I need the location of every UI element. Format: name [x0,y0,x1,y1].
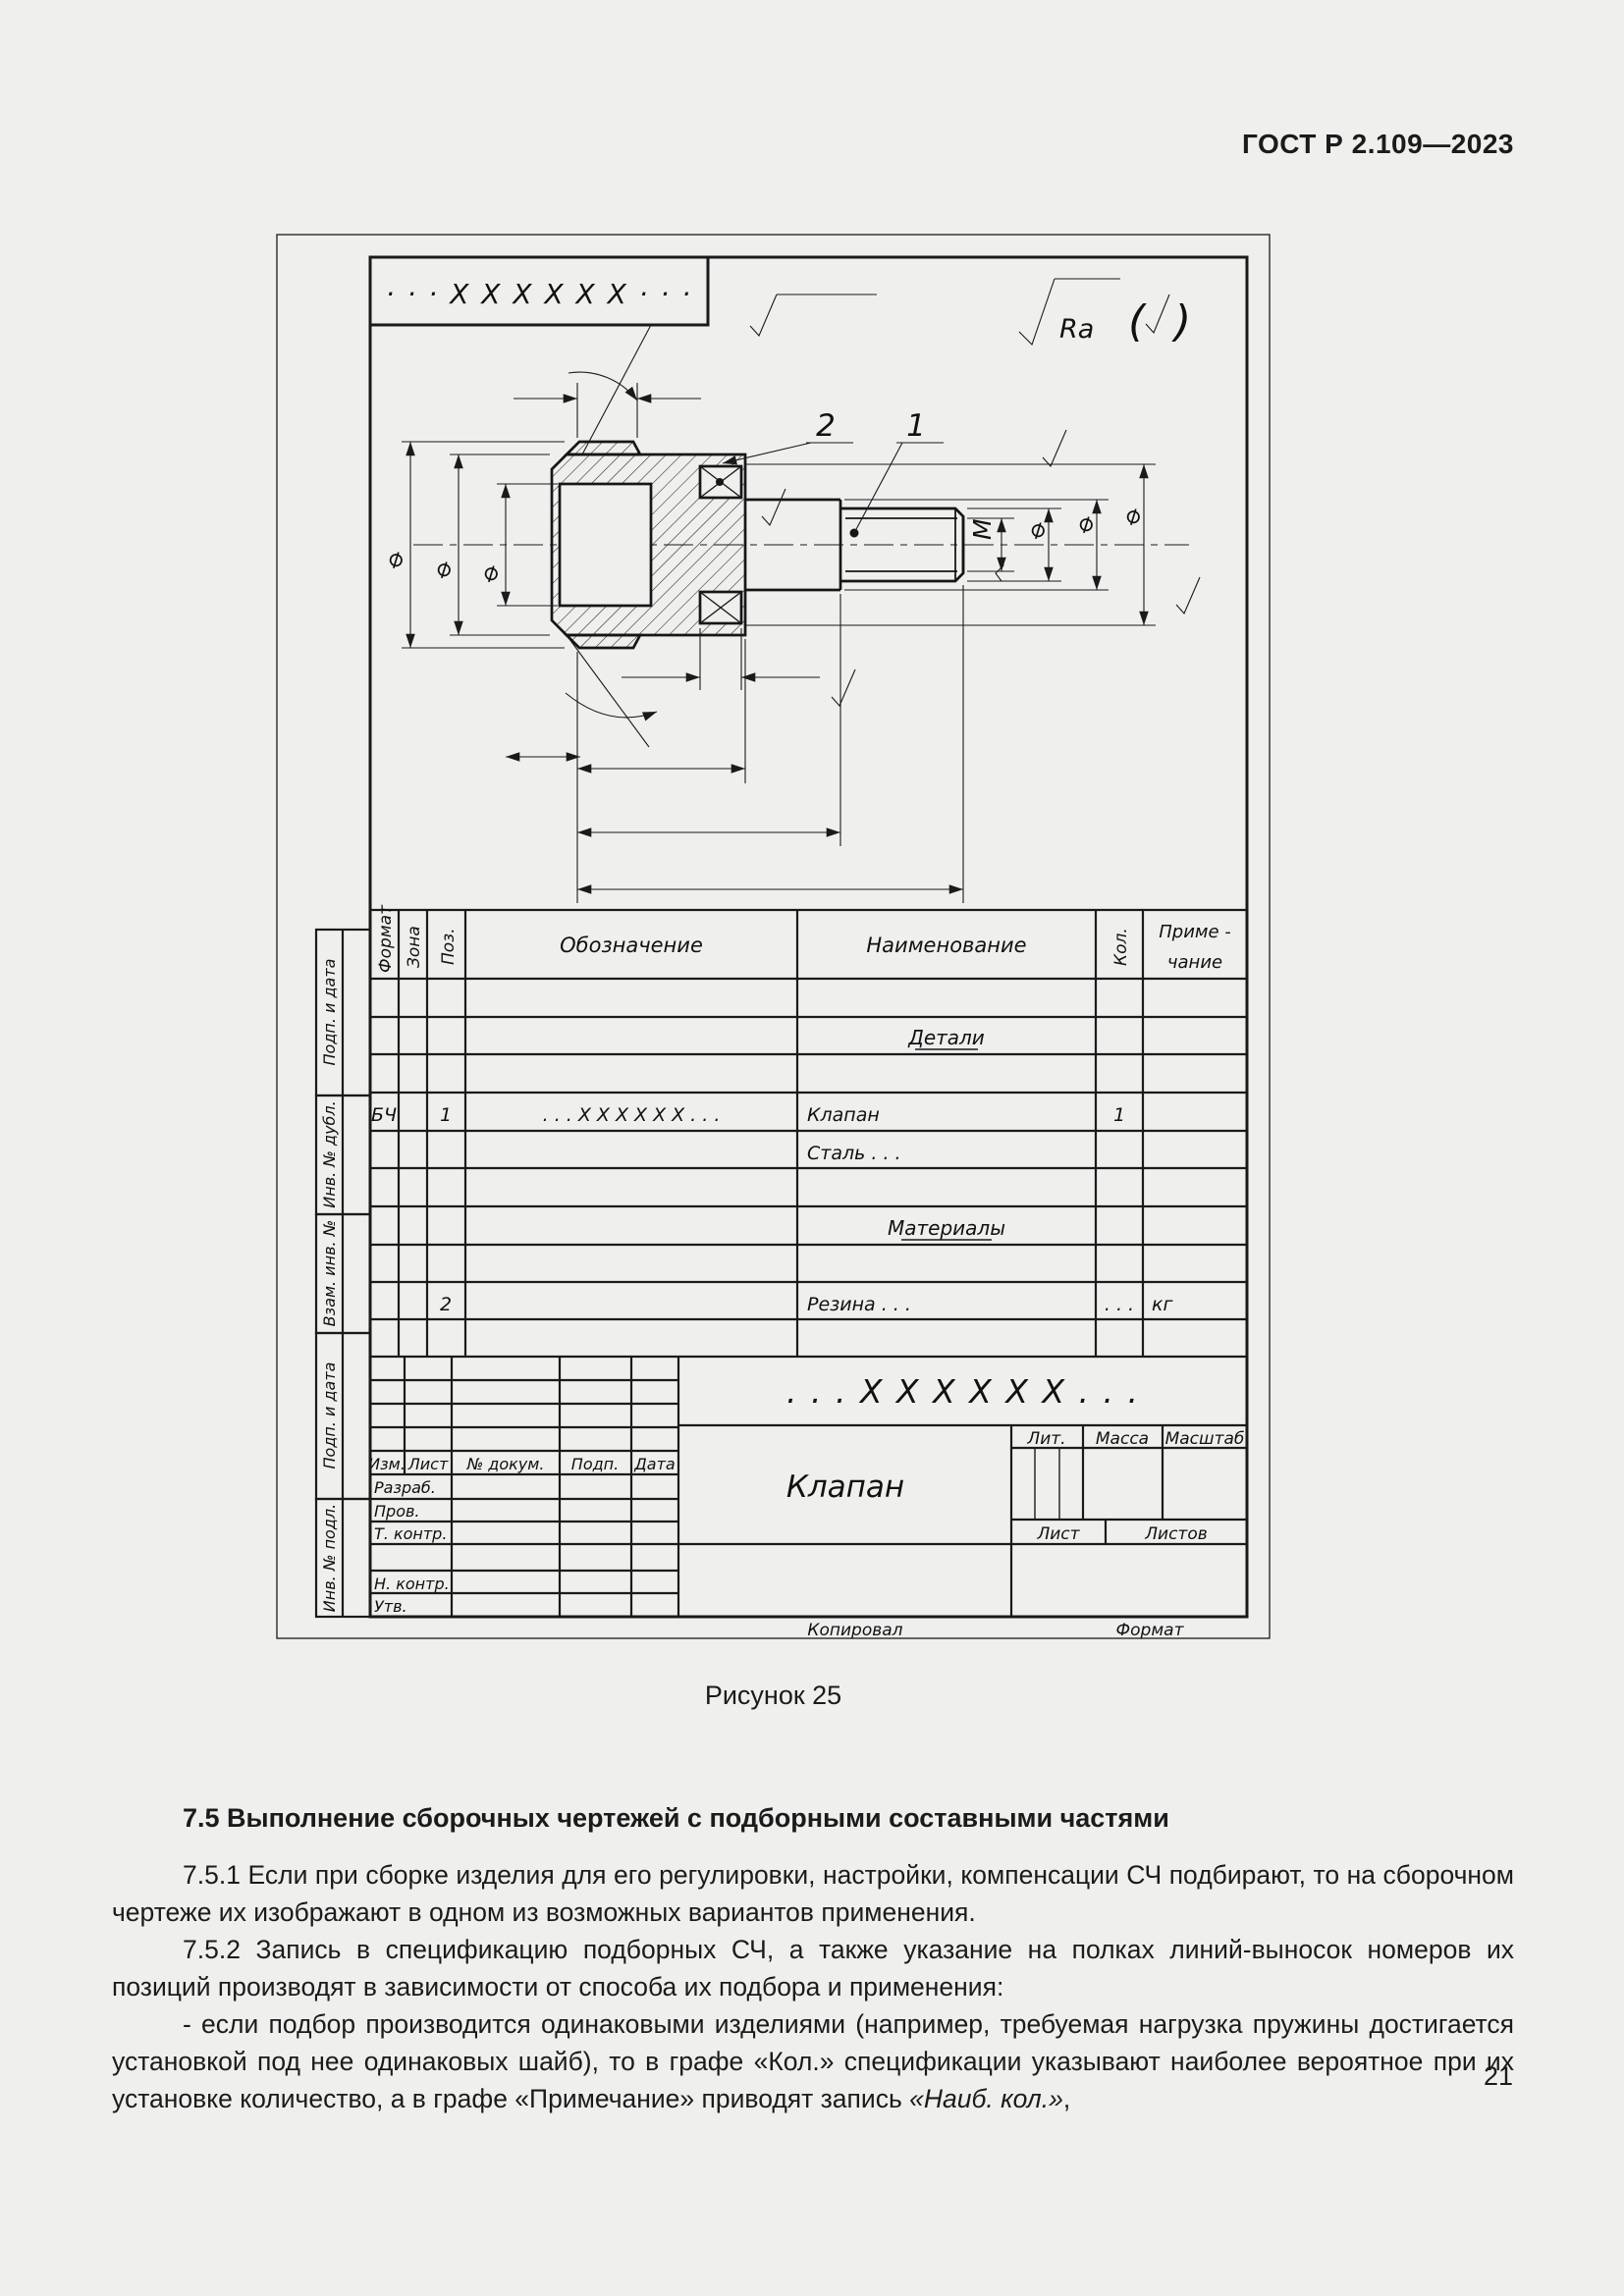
col-designation: Обозначение [560,934,703,957]
page-number: 21 [1484,2061,1513,2092]
packing-ring-top [700,466,741,498]
callout-2: 2 [816,408,836,444]
tb-list-col: Лист [407,1455,449,1473]
paragraph-list-item: - если подбор производится одинаковыми и… [112,2005,1514,2117]
col-zone: Зона [405,926,424,968]
document-page: ГОСТ Р 2.109—2023 · · · X X X X X X · · … [0,0,1624,2296]
tb-izm: Изм. [368,1455,406,1473]
margin-col-2: Инв. № дубл. [320,1100,339,1207]
paren-right: ) [1171,296,1191,347]
row1-qty: 1 [1113,1104,1125,1126]
tb-tkontr: Т. контр. [374,1524,447,1543]
tb-masshtab: Масштаб [1165,1429,1245,1449]
roughness-legend: Ra ( ) [1019,279,1191,347]
boss-bottom [567,635,640,648]
figure-25: · · · X X X X X X · · · Ra ( ) [276,234,1271,1639]
counterbore [560,484,651,606]
boss-top [567,442,640,454]
figure-caption: Рисунок 25 [276,1681,1271,1711]
tb-designation: . . . X X X X X X . . . [786,1372,1140,1411]
tb-utv: Утв. [374,1597,407,1616]
tb-massa: Масса [1096,1429,1149,1449]
body-text: 7.5 Выполнение сборочных чертежей с подб… [112,1799,1514,2117]
margin-columns: Подп. и дата Инв. № дубл. Взам. инв. № П… [316,930,370,1617]
col-format: Формат [376,904,396,973]
col-note-2: чание [1167,952,1222,973]
tb-lit: Лит. [1026,1429,1065,1449]
col-note-1: Приме - [1159,922,1231,942]
margin-col-4: Подп. и дата [320,1362,339,1469]
section-details: Детали [907,1026,985,1049]
row2-qty: . . . [1105,1294,1134,1315]
tb-kopiroval: Копировал [807,1621,902,1639]
col-qty: Кол. [1111,928,1131,966]
valve-section-view [413,442,1189,648]
dia-symbol: ⌀ [1071,507,1098,540]
dia-symbol: ⌀ [1023,513,1050,546]
thread-symbol: M [968,518,997,540]
paren-left: ( [1128,296,1147,347]
tb-product-name: Клапан [786,1469,904,1505]
section-materials: Материалы [888,1216,1005,1240]
tb-list: Лист [1036,1524,1080,1544]
row1-format: БЧ [371,1104,397,1126]
paragraph-7-5-1: 7.5.1 Если при сборке изделия для его ре… [112,1856,1514,1931]
tb-prov: Пров. [374,1502,420,1521]
tb-razrab: Разраб. [374,1478,436,1497]
section-heading: 7.5 Выполнение сборочных чертежей с подб… [112,1799,1514,1837]
row1-pos: 1 [440,1104,452,1126]
packing-ring-bottom [700,592,741,623]
list-item-text: - если подбор производится одинаковыми и… [112,2009,1514,2113]
technical-drawing-sheet: · · · X X X X X X · · · Ra ( ) [276,234,1271,1639]
tb-listov: Листов [1144,1524,1208,1544]
top-stamp-designation: · · · X X X X X X · · · [386,278,692,310]
tb-format: Формат [1116,1621,1185,1639]
dia-symbol: ⌀ [429,553,456,585]
col-name: Наименование [866,934,1026,957]
list-item-italic: «Наиб. кол.» [909,2084,1063,2113]
tb-nkontr: Н. контр. [374,1575,450,1593]
ra-label: Ra [1059,314,1094,345]
row2-name: Резина . . . [807,1294,911,1315]
paragraph-7-5-2: 7.5.2 Запись в спецификацию подборных СЧ… [112,1931,1514,2005]
dia-symbol: ⌀ [1118,500,1145,532]
title-block: Изм. Лист № докум. Подп. Дата Разраб. Пр… [368,1357,1247,1639]
dia-symbol: ⌀ [381,543,407,575]
tb-doc: № докум. [466,1455,545,1473]
row1-name: Клапан [807,1104,880,1126]
specification-table: Формат Зона Поз. Обозначение Наименовани… [370,904,1247,1357]
tb-podp: Подп. [571,1455,619,1473]
row2-pos: 2 [440,1294,452,1315]
margin-col-3: Взам. инв. № [320,1220,339,1327]
list-item-tail: , [1063,2084,1070,2113]
tb-data: Дата [633,1455,675,1473]
dia-symbol: ⌀ [476,557,503,589]
row1-designation: . . . X X X X X X . . . [543,1104,721,1126]
margin-col-1: Подп. и дата [320,959,339,1066]
row1-material: Сталь . . . [807,1143,901,1164]
margin-col-5: Инв. № подл. [320,1504,339,1612]
row2-note: кг [1152,1294,1173,1315]
dimension-lines: ⌀ ⌀ ⌀ [381,325,1156,903]
standard-designation: ГОСТ Р 2.109—2023 [1242,129,1514,160]
callout-1: 1 [906,408,926,444]
col-pos: Поз. [439,928,459,965]
